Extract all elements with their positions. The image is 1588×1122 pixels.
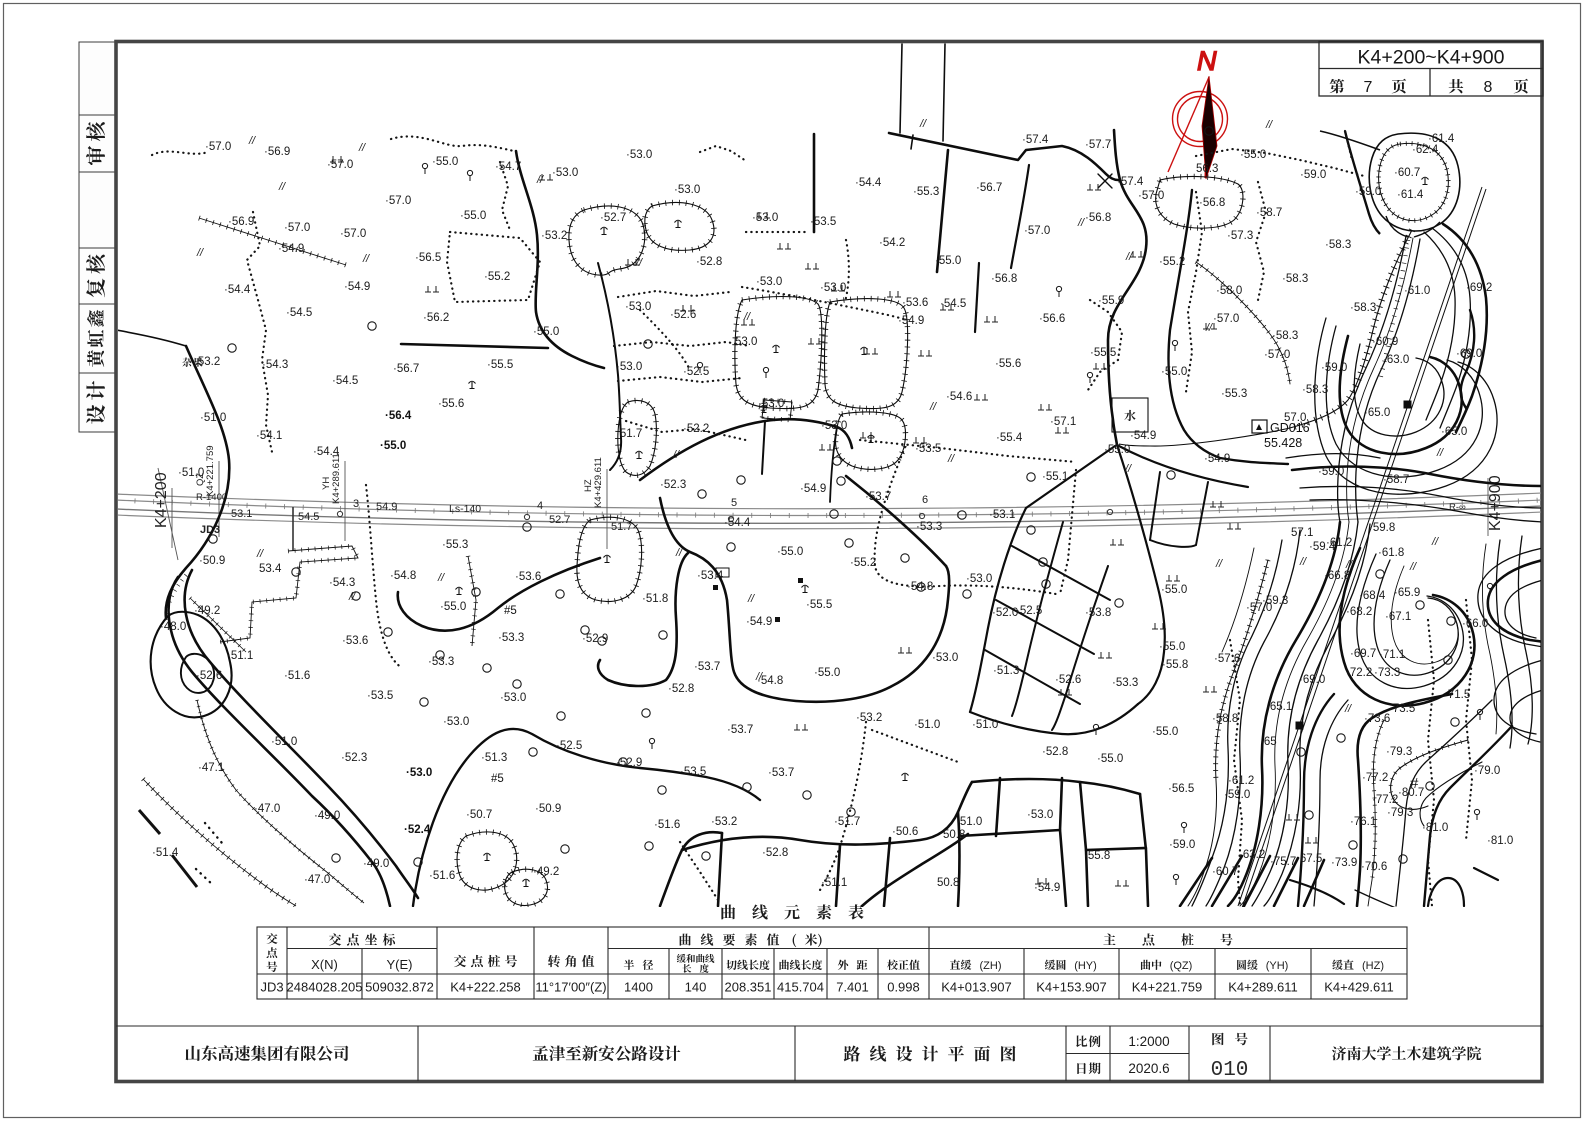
svg-text:·57.4: ·57.4 <box>1022 134 1049 146</box>
svg-text:·58.7: ·58.7 <box>1256 207 1282 219</box>
svg-text:·57.0: ·57.0 <box>1138 190 1164 202</box>
svg-text:3: 3 <box>353 498 359 510</box>
svg-text:·57.0: ·57.0 <box>385 195 411 207</box>
svg-text:·59.0: ·59.0 <box>1355 186 1381 198</box>
svg-text:57.0: 57.0 <box>1284 412 1306 424</box>
svg-text:·55.0: ·55.0 <box>935 255 961 267</box>
svg-text:·53.2: ·53.2 <box>856 712 882 724</box>
svg-text://: // <box>919 118 927 130</box>
svg-text:·47.0: ·47.0 <box>254 803 280 815</box>
svg-text:K4+200: K4+200 <box>153 472 170 528</box>
svg-text:·68.4: ·68.4 <box>1359 590 1386 602</box>
svg-text:·75.7: ·75.7 <box>1270 856 1296 868</box>
svg-text:·53.0: ·53.0 <box>756 276 782 288</box>
svg-text:·51.0: ·51.0 <box>956 816 982 828</box>
svg-text:7.401: 7.401 <box>836 980 869 995</box>
svg-text:010: 010 <box>1211 1059 1249 1082</box>
svg-text:·56.9: ·56.9 <box>264 146 290 158</box>
svg-text:·53.5: ·53.5 <box>915 443 941 455</box>
svg-text:·81.0: ·81.0 <box>1487 835 1513 847</box>
svg-text:1:2000: 1:2000 <box>1128 1034 1169 1049</box>
svg-text:·58.8: ·58.8 <box>1212 713 1238 725</box>
svg-text:·58.3: ·58.3 <box>1302 384 1328 396</box>
svg-text:·55.2: ·55.2 <box>850 557 876 569</box>
svg-text:·59.0: ·59.0 <box>1300 169 1326 181</box>
svg-text:·53.2: ·53.2 <box>711 816 737 828</box>
svg-text:·49.2: ·49.2 <box>533 866 559 878</box>
svg-text:6: 6 <box>922 494 928 506</box>
svg-text:·59.8: ·59.8 <box>1369 522 1395 534</box>
svg-text:N: N <box>1197 46 1217 76</box>
svg-text:·56.9: ·56.9 <box>228 216 254 228</box>
svg-text:·51.0: ·51.0 <box>914 719 940 731</box>
svg-text://: // <box>437 572 445 584</box>
svg-text:·52.5: ·52.5 <box>556 740 582 752</box>
svg-text:·56.8: ·56.8 <box>1199 197 1225 209</box>
svg-text:11°17′00″(Z): 11°17′00″(Z) <box>535 980 606 995</box>
svg-text:·52.0: ·52.0 <box>992 607 1018 619</box>
svg-text:·55.8: ·55.8 <box>1084 850 1110 862</box>
svg-text:·54.9: ·54.9 <box>800 483 826 495</box>
svg-text:·53.2: ·53.2 <box>541 230 567 242</box>
svg-text:56.3: 56.3 <box>1196 163 1218 175</box>
svg-text:·52.8: ·52.8 <box>668 683 694 695</box>
svg-text:·52.8: ·52.8 <box>696 256 722 268</box>
svg-text:·55.0: ·55.0 <box>533 326 559 338</box>
svg-text:·55.0: ·55.0 <box>1097 753 1123 765</box>
svg-text:·55.8: ·55.8 <box>1162 659 1188 671</box>
svg-text:·57.6: ·57.6 <box>1214 653 1240 665</box>
svg-text:2484028.205: 2484028.205 <box>287 980 363 995</box>
svg-text:·51.3: ·51.3 <box>481 752 507 764</box>
svg-text:50.8: 50.8 <box>937 877 959 889</box>
svg-text:·59.0: ·59.0 <box>1321 362 1347 374</box>
svg-text:·51.3: ·51.3 <box>993 665 1019 677</box>
svg-text:K4+153.907: K4+153.907 <box>1036 980 1106 995</box>
svg-text:·53.6: ·53.6 <box>902 297 928 309</box>
svg-text:·56.6: ·56.6 <box>1039 313 1065 325</box>
svg-text:·50.9: ·50.9 <box>535 803 561 815</box>
svg-text:·63.2: ·63.2 <box>1239 849 1265 861</box>
svg-text:·77.2: ·77.2 <box>1372 794 1398 806</box>
svg-text:·69.2: ·69.2 <box>1466 282 1492 294</box>
svg-text:·54.9: ·54.9 <box>898 315 924 327</box>
svg-text:·56.8: ·56.8 <box>991 273 1017 285</box>
svg-text:#5: #5 <box>504 605 517 617</box>
svg-text:·51.4: ·51.4 <box>152 847 179 859</box>
svg-text:52.7: 52.7 <box>549 514 570 526</box>
svg-text:·54.3: ·54.3 <box>329 577 355 589</box>
svg-text:·55.0: ·55.0 <box>460 210 486 222</box>
svg-text:·52.7: ·52.7 <box>600 212 626 224</box>
svg-text:·56.4: ·56.4 <box>385 410 412 422</box>
svg-text:·76.1: ·76.1 <box>1350 816 1376 828</box>
svg-text://: // <box>675 547 683 559</box>
svg-text:4: 4 <box>537 500 543 512</box>
svg-text:·53.7: ·53.7 <box>694 661 720 673</box>
svg-text:·65.9: ·65.9 <box>1394 587 1420 599</box>
svg-text:·55.1: ·55.1 <box>1042 471 1068 483</box>
svg-text:·51.0: ·51.0 <box>972 719 998 731</box>
svg-text:K4+289.611: K4+289.611 <box>331 453 342 504</box>
svg-text://: // <box>1124 463 1132 475</box>
svg-text://: // <box>635 257 643 269</box>
svg-text:·53.7: ·53.7 <box>727 724 753 736</box>
svg-text:·53.0: ·53.0 <box>552 167 578 179</box>
svg-text:·54.4: ·54.4 <box>313 446 340 458</box>
svg-text://: // <box>1205 322 1213 334</box>
svg-text:·61.2: ·61.2 <box>1326 537 1352 549</box>
svg-text:·57.0: ·57.0 <box>1246 602 1272 614</box>
svg-text:X(N): X(N) <box>311 957 338 972</box>
svg-text://: // <box>1431 536 1439 548</box>
svg-text:·55.5: ·55.5 <box>1090 347 1116 359</box>
svg-text:(HZ): (HZ) <box>1362 960 1384 972</box>
svg-text:·51.6: ·51.6 <box>284 670 310 682</box>
svg-text:·57.0: ·57.0 <box>1213 313 1239 325</box>
svg-text:·55.3: ·55.3 <box>442 539 468 551</box>
svg-text:·51.8: ·51.8 <box>642 593 668 605</box>
svg-text:·54.9: ·54.9 <box>1130 430 1156 442</box>
svg-text:YH: YH <box>321 477 332 490</box>
svg-text://: // <box>1265 119 1273 131</box>
svg-text:51.7: 51.7 <box>611 521 632 533</box>
svg-text:·54.5: ·54.5 <box>332 375 358 387</box>
svg-text:JD3: JD3 <box>260 980 283 995</box>
svg-text://: // <box>1077 217 1085 229</box>
svg-text:·53.5: ·53.5 <box>367 690 393 702</box>
svg-text:·67.5: ·67.5 <box>1296 853 1322 865</box>
svg-text://: // <box>743 311 751 323</box>
svg-text:·63.0: ·63.0 <box>1383 354 1409 366</box>
svg-text:K4+013.907: K4+013.907 <box>941 980 1011 995</box>
svg-text:·55.0: ·55.0 <box>777 546 803 558</box>
svg-text:·58.3: ·58.3 <box>1350 302 1376 314</box>
svg-text:·65.0: ·65.0 <box>1441 426 1467 438</box>
svg-text:·53.5: ·53.5 <box>680 766 706 778</box>
svg-text:·55.6: ·55.6 <box>995 358 1021 370</box>
svg-text://: // <box>362 253 370 265</box>
svg-text:·57.0: ·57.0 <box>327 159 353 171</box>
svg-text:·52.6: ·52.6 <box>1055 674 1081 686</box>
svg-text:·50.6: ·50.6 <box>892 826 918 838</box>
svg-text:·56.7: ·56.7 <box>976 182 1002 194</box>
svg-text:·52.8: ·52.8 <box>762 847 788 859</box>
svg-text:·61.4: ·61.4 <box>1397 189 1424 201</box>
svg-text:·56.2: ·56.2 <box>423 312 449 324</box>
svg-text:53.0: 53.0 <box>735 336 757 348</box>
svg-text://: // <box>672 449 680 461</box>
svg-text:·66.8: ·66.8 <box>1324 570 1350 582</box>
svg-text:·56.7: ·56.7 <box>393 363 419 375</box>
svg-text:·51.7: ·51.7 <box>834 816 860 828</box>
svg-text:·55.3: ·55.3 <box>913 186 939 198</box>
svg-text:·55.0: ·55.0 <box>1152 726 1178 738</box>
svg-text:·53.5: ·53.5 <box>810 216 836 228</box>
svg-text:·53.0: ·53.0 <box>932 652 958 664</box>
svg-text:·55.5: ·55.5 <box>487 359 513 371</box>
svg-text://: // <box>278 181 286 193</box>
svg-text:·73.5: ·73.5 <box>1389 703 1415 715</box>
svg-text:·57.0: ·57.0 <box>340 228 366 240</box>
svg-text:53.1: 53.1 <box>231 508 252 520</box>
svg-text:415.704: 415.704 <box>777 980 824 995</box>
svg-text:·49.0: ·49.0 <box>363 858 389 870</box>
svg-text:·55.3: ·55.3 <box>1221 388 1247 400</box>
svg-text:·53.0: ·53.0 <box>625 301 651 313</box>
svg-text:·56.8: ·56.8 <box>1085 212 1111 224</box>
svg-text:·59.0: ·59.0 <box>1318 466 1344 478</box>
svg-text:53.4: 53.4 <box>259 563 282 575</box>
svg-text:·77.2: ·77.2 <box>1362 772 1388 784</box>
svg-text:·58.3: ·58.3 <box>1325 239 1351 251</box>
svg-text:·54.5: ·54.5 <box>286 307 312 319</box>
svg-text:54.5: 54.5 <box>298 511 319 523</box>
svg-text:·60.7: ·60.7 <box>1212 866 1238 878</box>
svg-text:·57.4: ·57.4 <box>1117 176 1144 188</box>
svg-text:·53.0: ·53.0 <box>500 692 526 704</box>
svg-text:K4+200~K4+900: K4+200~K4+900 <box>1358 47 1505 69</box>
svg-text:·52.8: ·52.8 <box>1042 746 1068 758</box>
svg-text:·50.7: ·50.7 <box>466 809 492 821</box>
svg-text:(QZ): (QZ) <box>1170 960 1193 972</box>
svg-text:·53.1: ·53.1 <box>989 509 1015 521</box>
svg-text:·54.6: ·54.6 <box>946 391 972 403</box>
svg-text:(HY): (HY) <box>1074 960 1097 972</box>
svg-text:·72.2: ·72.2 <box>1346 667 1372 679</box>
svg-text:·67.1: ·67.1 <box>1385 611 1411 623</box>
svg-text:·53.7: ·53.7 <box>865 491 891 503</box>
svg-text:·55.2: ·55.2 <box>484 271 510 283</box>
svg-text:·79.3: ·79.3 <box>1386 746 1412 758</box>
svg-text:50.8: 50.8 <box>943 829 965 841</box>
svg-text:·53.3: ·53.3 <box>1112 677 1138 689</box>
svg-text://: // <box>536 174 544 186</box>
svg-text:·54.4: ·54.4 <box>224 284 251 296</box>
svg-text:·81.0: ·81.0 <box>1422 822 1448 834</box>
svg-text:·65.1: ·65.1 <box>1266 701 1292 713</box>
svg-text:K4+429.611: K4+429.611 <box>593 457 604 508</box>
svg-text:·73.6: ·73.6 <box>1364 713 1390 725</box>
svg-text://: // <box>747 593 755 605</box>
svg-text:·54.9: ·54.9 <box>1204 453 1230 465</box>
svg-text:·53.3: ·53.3 <box>916 521 942 533</box>
svg-text:·52.3: ·52.3 <box>660 479 686 491</box>
svg-text:·60.7: ·60.7 <box>1394 167 1420 179</box>
svg-text:·51.0: ·51.0 <box>271 736 297 748</box>
svg-text:55.428: 55.428 <box>1264 436 1302 450</box>
svg-text:K4+429.611: K4+429.611 <box>1324 980 1394 995</box>
svg-text:·55.0: ·55.0 <box>1161 584 1187 596</box>
svg-text://: // <box>196 247 204 259</box>
svg-text:·53.6: ·53.6 <box>515 571 541 583</box>
svg-text:·55.0: ·55.0 <box>1161 366 1187 378</box>
svg-text:208.351: 208.351 <box>725 980 772 995</box>
svg-text:·51.6: ·51.6 <box>654 819 680 831</box>
svg-text:·53.3: ·53.3 <box>498 632 524 644</box>
svg-text:·54.9: ·54.9 <box>278 243 304 255</box>
svg-text:·60.9: ·60.9 <box>1372 336 1398 348</box>
svg-text:·69.0: ·69.0 <box>1456 348 1482 360</box>
svg-text:·55.4: ·55.4 <box>996 432 1023 444</box>
svg-text:·73.9: ·73.9 <box>1331 857 1357 869</box>
svg-text:·53.0: ·53.0 <box>821 420 847 432</box>
svg-text:·57.0: ·57.0 <box>1264 349 1290 361</box>
svg-text:·58.7: ·58.7 <box>1383 474 1409 486</box>
svg-text:·51.0: ·51.0 <box>178 467 204 479</box>
svg-text:·61.2: ·61.2 <box>1228 775 1254 787</box>
svg-text://: // <box>1436 447 1444 459</box>
svg-text:·54.1: ·54.1 <box>256 430 282 442</box>
svg-text:·53.0: ·53.0 <box>626 149 652 161</box>
svg-text://: // <box>256 548 264 560</box>
svg-text:54.9: 54.9 <box>376 501 397 513</box>
svg-text:·54.4: ·54.4 <box>724 517 751 529</box>
svg-text://: // <box>929 401 937 413</box>
svg-text:·54.7: ·54.7 <box>495 161 521 173</box>
svg-text:·66.0: ·66.0 <box>1462 618 1488 630</box>
svg-text:·55.0: ·55.0 <box>1159 641 1185 653</box>
svg-text:8: 8 <box>1484 79 1493 96</box>
svg-text://: // <box>947 453 955 465</box>
svg-text:·55.5: ·55.5 <box>806 599 832 611</box>
svg-text:·55.0: ·55.0 <box>380 440 406 452</box>
svg-text:57.1: 57.1 <box>1291 527 1313 539</box>
svg-text:(YH): (YH) <box>1266 960 1289 972</box>
svg-text:·56.5: ·56.5 <box>1168 783 1194 795</box>
svg-text:·68.2: ·68.2 <box>1346 606 1372 618</box>
svg-text:·53.0: ·53.0 <box>616 361 642 373</box>
svg-text:(ZH): (ZH) <box>980 960 1002 972</box>
svg-text:·58.3: ·58.3 <box>1272 330 1298 342</box>
svg-text:K4+289.611: K4+289.611 <box>1228 980 1298 995</box>
svg-text:·53.0: ·53.0 <box>406 767 432 779</box>
svg-text://: // <box>1344 703 1352 715</box>
svg-text:#: # <box>1410 775 1419 792</box>
svg-text:·49.2: ·49.2 <box>194 605 220 617</box>
svg-text:·58.0: ·58.0 <box>1216 285 1242 297</box>
svg-text:·54.5: ·54.5 <box>940 298 966 310</box>
svg-text:·54.4: ·54.4 <box>855 177 882 189</box>
svg-text://: // <box>1345 559 1353 571</box>
svg-text:7: 7 <box>1364 79 1373 96</box>
svg-text:·55.6: ·55.6 <box>438 398 464 410</box>
svg-text:·52.5: ·52.5 <box>683 366 709 378</box>
svg-text:·55.0: ·55.0 <box>814 667 840 679</box>
svg-text://: // <box>1299 556 1307 568</box>
svg-text:·57.0: ·57.0 <box>284 222 310 234</box>
svg-text:·52.4: ·52.4 <box>404 824 431 836</box>
svg-text:Y(E): Y(E) <box>387 957 413 972</box>
svg-text://: // <box>1409 561 1417 573</box>
svg-text:·57.7: ·57.7 <box>1085 139 1111 151</box>
svg-text:·53.4: ·53.4 <box>697 570 724 582</box>
svg-text:·53.7: ·53.7 <box>768 767 794 779</box>
svg-text:·73.3: ·73.3 <box>1374 667 1400 679</box>
svg-text://: // <box>248 135 256 147</box>
svg-text:·52.9: ·52.9 <box>582 633 608 645</box>
svg-text:·52.6: ·52.6 <box>196 670 222 682</box>
svg-text:·52.3: ·52.3 <box>341 752 367 764</box>
svg-text:·53.0: ·53.0 <box>674 184 700 196</box>
svg-text:·56.5: ·56.5 <box>415 252 441 264</box>
svg-text:·51.0: ·51.0 <box>200 412 226 424</box>
svg-text:·59.0: ·59.0 <box>1169 839 1195 851</box>
svg-text:·51.1: ·51.1 <box>821 877 847 889</box>
svg-text:·51.1: ·51.1 <box>227 650 253 662</box>
svg-text:5: 5 <box>731 497 737 509</box>
svg-text:·54.9: ·54.9 <box>746 616 772 628</box>
svg-text:·61.8: ·61.8 <box>1378 547 1404 559</box>
svg-text:1400: 1400 <box>624 980 653 995</box>
svg-text:R-1400: R-1400 <box>196 492 227 503</box>
svg-text:·79.0: ·79.0 <box>1474 765 1500 777</box>
svg-text:K4+221.759: K4+221.759 <box>205 445 216 497</box>
svg-text:·55.0: ·55.0 <box>1240 149 1266 161</box>
svg-text:·71.5: ·71.5 <box>1444 689 1470 701</box>
svg-text:·47.1: ·47.1 <box>198 762 224 774</box>
svg-text:·48.0: ·48.0 <box>160 621 186 633</box>
svg-text:·79.3: ·79.3 <box>1387 807 1413 819</box>
svg-text:·54.3: ·54.3 <box>262 359 288 371</box>
svg-text:K4+222.258: K4+222.258 <box>450 980 520 995</box>
svg-text:·49.0: ·49.0 <box>314 810 340 822</box>
svg-text:·55.2: ·55.2 <box>1159 256 1185 268</box>
svg-text:·53.8: ·53.8 <box>1085 607 1111 619</box>
svg-text:·50.9: ·50.9 <box>199 555 225 567</box>
svg-text:·58.3: ·58.3 <box>1282 273 1308 285</box>
svg-text:·53.0: ·53.0 <box>443 716 469 728</box>
svg-text:·53.3: ·53.3 <box>428 656 454 668</box>
svg-text:·57.3: ·57.3 <box>1227 230 1253 242</box>
svg-text:·55.9: ·55.9 <box>1098 295 1124 307</box>
svg-text:·65: ·65 <box>1260 736 1277 748</box>
svg-text:·54.8: ·54.8 <box>390 570 416 582</box>
svg-text:·54.2: ·54.2 <box>879 237 905 249</box>
svg-text:509032.872: 509032.872 <box>365 980 434 995</box>
svg-text:·62.4: ·62.4 <box>1412 144 1439 156</box>
svg-text:·57.0: ·57.0 <box>205 141 231 153</box>
svg-text:·71.1: ·71.1 <box>1379 649 1405 661</box>
svg-text:·52.2: ·52.2 <box>683 423 709 435</box>
svg-text:·51.7: ·51.7 <box>616 428 642 440</box>
svg-text:·55.0: ·55.0 <box>1104 444 1130 456</box>
svg-text:·53.0: ·53.0 <box>1027 809 1053 821</box>
svg-text:·69.0: ·69.0 <box>1299 674 1325 686</box>
svg-text:K4+221.759: K4+221.759 <box>1132 980 1202 995</box>
svg-text:·55.0: ·55.0 <box>440 601 466 613</box>
svg-text://: // <box>755 671 763 683</box>
svg-text://: // <box>348 591 356 603</box>
svg-text://: // <box>1215 558 1223 570</box>
svg-text:·52.5: ·52.5 <box>1016 605 1042 617</box>
svg-text:·61.0: ·61.0 <box>1404 285 1430 297</box>
svg-text:·51.6: ·51.6 <box>429 870 455 882</box>
svg-text:·59.0: ·59.0 <box>1224 789 1250 801</box>
svg-text:·57.0: ·57.0 <box>1024 225 1050 237</box>
svg-text:·70.6: ·70.6 <box>1361 861 1387 873</box>
svg-text:#5: #5 <box>491 773 504 785</box>
svg-text:0.998: 0.998 <box>887 980 920 995</box>
svg-text://: // <box>358 142 366 154</box>
svg-text:Ls-140: Ls-140 <box>449 503 481 515</box>
svg-text:·57.1: ·57.1 <box>1050 416 1076 428</box>
svg-text:·53.0: ·53.0 <box>758 398 784 410</box>
svg-text:·69.7: ·69.7 <box>1350 648 1376 660</box>
svg-text:140: 140 <box>685 980 707 995</box>
svg-text:·55.0: ·55.0 <box>432 156 458 168</box>
svg-text:·53.6: ·53.6 <box>342 635 368 647</box>
